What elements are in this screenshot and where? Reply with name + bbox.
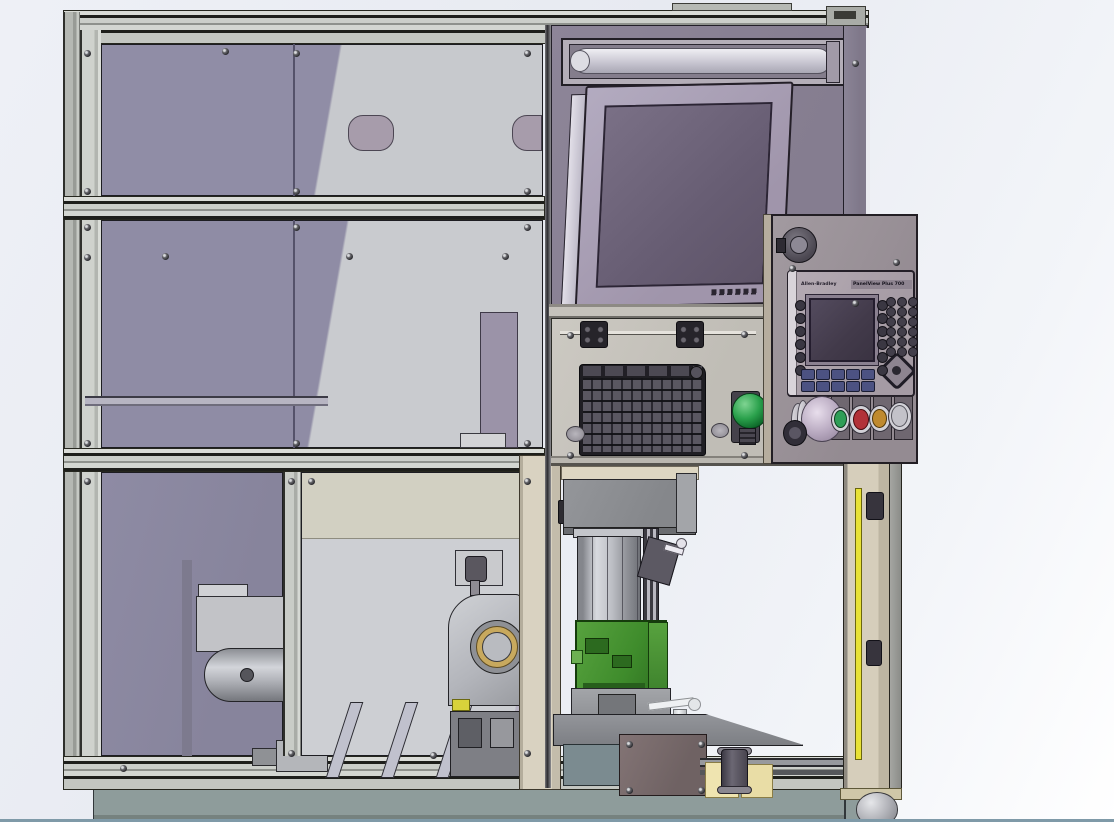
hmi-keypad-key[interactable] (886, 337, 896, 347)
frame-rail-1 (63, 196, 545, 220)
panel-screw (741, 331, 748, 338)
panel-screw (524, 224, 531, 231)
bearing-center (482, 632, 512, 662)
panel-screw (567, 332, 574, 339)
hmi-function-key[interactable] (795, 339, 806, 350)
door-latch[interactable] (866, 640, 882, 666)
hmi-screen[interactable] (809, 298, 875, 362)
hmi-soft-key[interactable] (831, 369, 845, 380)
light-tube-cap (570, 50, 590, 72)
panel-screw (893, 259, 900, 266)
interior-stack-dark (458, 718, 482, 748)
hmi-soft-key[interactable] (801, 381, 815, 392)
panel-screw (698, 741, 705, 748)
panel-screw (84, 440, 91, 447)
hmi-keypad-key[interactable] (908, 297, 918, 307)
monitor-brand-text (711, 288, 757, 295)
hmi-keypad-key[interactable] (886, 327, 896, 337)
panel-screw (120, 765, 127, 772)
workpiece-detail (612, 655, 632, 668)
pendant-latch-knob-center (789, 427, 801, 439)
panel-screw (288, 478, 295, 485)
monitor-screen (596, 102, 773, 288)
keyboard-top-row (583, 366, 702, 376)
panel-screw (524, 50, 531, 57)
row3-mid-post (283, 472, 301, 756)
panel-screw (626, 741, 633, 748)
panel-oval-right (711, 423, 729, 438)
hmi-soft-key[interactable] (861, 369, 875, 380)
hmi-soft-key[interactable] (816, 369, 830, 380)
panel-joint-row1 (293, 44, 295, 196)
red-pushbutton[interactable] (853, 409, 869, 430)
keyboard-keys[interactable] (583, 378, 702, 452)
interior-stack-light (490, 718, 514, 748)
panel-screw (84, 224, 91, 231)
panel-joint-row2 (293, 220, 295, 448)
panel-screw (502, 253, 509, 260)
keyboard-hinge (676, 321, 704, 348)
hmi-keypad-key[interactable] (897, 317, 907, 327)
frame-rail-2 (63, 448, 545, 472)
hmi-keypad-key[interactable] (897, 347, 907, 357)
hmi-brand-label: Allen-Bradley (801, 281, 848, 288)
frame-left-inner-post (80, 30, 101, 790)
valve-sub-block (252, 748, 278, 766)
guard-window-row1 (101, 44, 543, 196)
hmi-soft-key[interactable] (831, 381, 845, 392)
light-end-bracket (826, 41, 840, 83)
oval-cutout (348, 115, 394, 151)
panel-screw (84, 478, 91, 485)
panel-screw (346, 253, 353, 260)
panel-oval-left (566, 426, 585, 442)
workpiece-detail (585, 638, 609, 654)
sensor-disc (676, 538, 687, 549)
panel-screw (741, 452, 748, 459)
hmi-keypad-key[interactable] (908, 347, 918, 357)
pneumatic-elbow-fitting (465, 556, 487, 582)
motor-support-column (182, 560, 192, 756)
panel-screw (626, 787, 633, 794)
panel-screw (84, 254, 91, 261)
hmi-function-key[interactable] (795, 300, 806, 311)
hmi-soft-key[interactable] (846, 369, 860, 380)
hmi-keypad-key[interactable] (908, 317, 918, 327)
hmi-arrow-pad-center[interactable] (892, 366, 901, 375)
panel-screw (567, 452, 574, 459)
hmi-keypad-key[interactable] (886, 347, 896, 357)
hmi-keypad-key[interactable] (886, 317, 896, 327)
interior-cross-rail (85, 396, 328, 406)
hmi-function-key[interactable] (795, 326, 806, 337)
floor-strip (0, 822, 1114, 828)
interior-bracket (460, 433, 506, 448)
panel-screw (84, 188, 91, 195)
panel-screw (524, 188, 531, 195)
keyboard-hinge (580, 321, 608, 348)
light-curtain-strip (855, 488, 862, 760)
oval-cutout-edge (512, 115, 542, 151)
interior-purple-panel (480, 312, 518, 448)
frame-left-outer-post (63, 12, 80, 790)
frame-top-tab (672, 3, 792, 11)
top-latch-slot (834, 11, 856, 19)
hmi-keypad-key[interactable] (897, 337, 907, 347)
palm-button-stem (739, 428, 756, 445)
hmi-function-key[interactable] (795, 352, 806, 363)
pendant-clamp-knob-center (790, 236, 808, 254)
motor-bracket (196, 596, 290, 652)
hmi-model-label: PanelView Plus 700 (853, 281, 900, 287)
panel-screw (524, 750, 531, 757)
hmi-keypad-key[interactable] (886, 307, 896, 317)
workpiece-nozzle (571, 650, 583, 664)
teal-block (563, 744, 621, 786)
hmi-soft-key[interactable] (816, 381, 830, 392)
hmi-keypad-key[interactable] (886, 297, 896, 307)
door-post-cap (889, 452, 902, 790)
hmi-function-key[interactable] (795, 313, 806, 324)
panel-screw (293, 188, 300, 195)
panel-screw (222, 48, 229, 55)
cad-viewport: Allen-Bradley PanelView Plus 700 (0, 0, 1114, 828)
yellow-chip (452, 699, 470, 711)
panel-screw (288, 750, 295, 757)
panel-screw (84, 50, 91, 57)
motor-hub (240, 668, 254, 682)
hmi-soft-key[interactable] (846, 381, 860, 392)
panel-screw (852, 60, 859, 67)
silver-pushbutton[interactable] (891, 405, 908, 427)
hmi-function-key[interactable] (877, 365, 888, 376)
panel-screw (293, 224, 300, 231)
pendant-clamp-nut (776, 238, 786, 253)
lift-cylinder (577, 536, 641, 628)
keyboard-corner-key[interactable] (690, 366, 703, 379)
green-pushbutton[interactable] (834, 410, 847, 428)
hmi-keypad-key[interactable] (897, 327, 907, 337)
hmi-soft-key[interactable] (801, 369, 815, 380)
panel-screw (293, 440, 300, 447)
panel-screw (524, 478, 531, 485)
light-tube (573, 48, 831, 74)
monitor (560, 82, 795, 315)
hmi-soft-key[interactable] (861, 381, 875, 392)
hmi-keypad-key[interactable] (897, 297, 907, 307)
panel-screw (789, 265, 796, 272)
spool-flange-bottom (717, 786, 752, 794)
hmi-keypad-key[interactable] (908, 337, 918, 347)
panel-screw (524, 440, 531, 447)
amber-pushbutton[interactable] (872, 409, 887, 428)
panel-screw (162, 253, 169, 260)
panel-screw (698, 787, 705, 794)
work-head-side (676, 473, 697, 533)
panel-screw (852, 300, 859, 307)
clamp-handle-knob[interactable] (688, 698, 701, 711)
hmi-keypad-key[interactable] (908, 307, 918, 317)
panel-screw (308, 478, 315, 485)
door-latch[interactable] (866, 492, 884, 520)
panel-screw (293, 50, 300, 57)
panel-screw (430, 752, 437, 759)
hmi-keypad-key[interactable] (908, 327, 918, 337)
interior-back-wall (302, 473, 542, 539)
hmi-keypad-key[interactable] (897, 307, 907, 317)
